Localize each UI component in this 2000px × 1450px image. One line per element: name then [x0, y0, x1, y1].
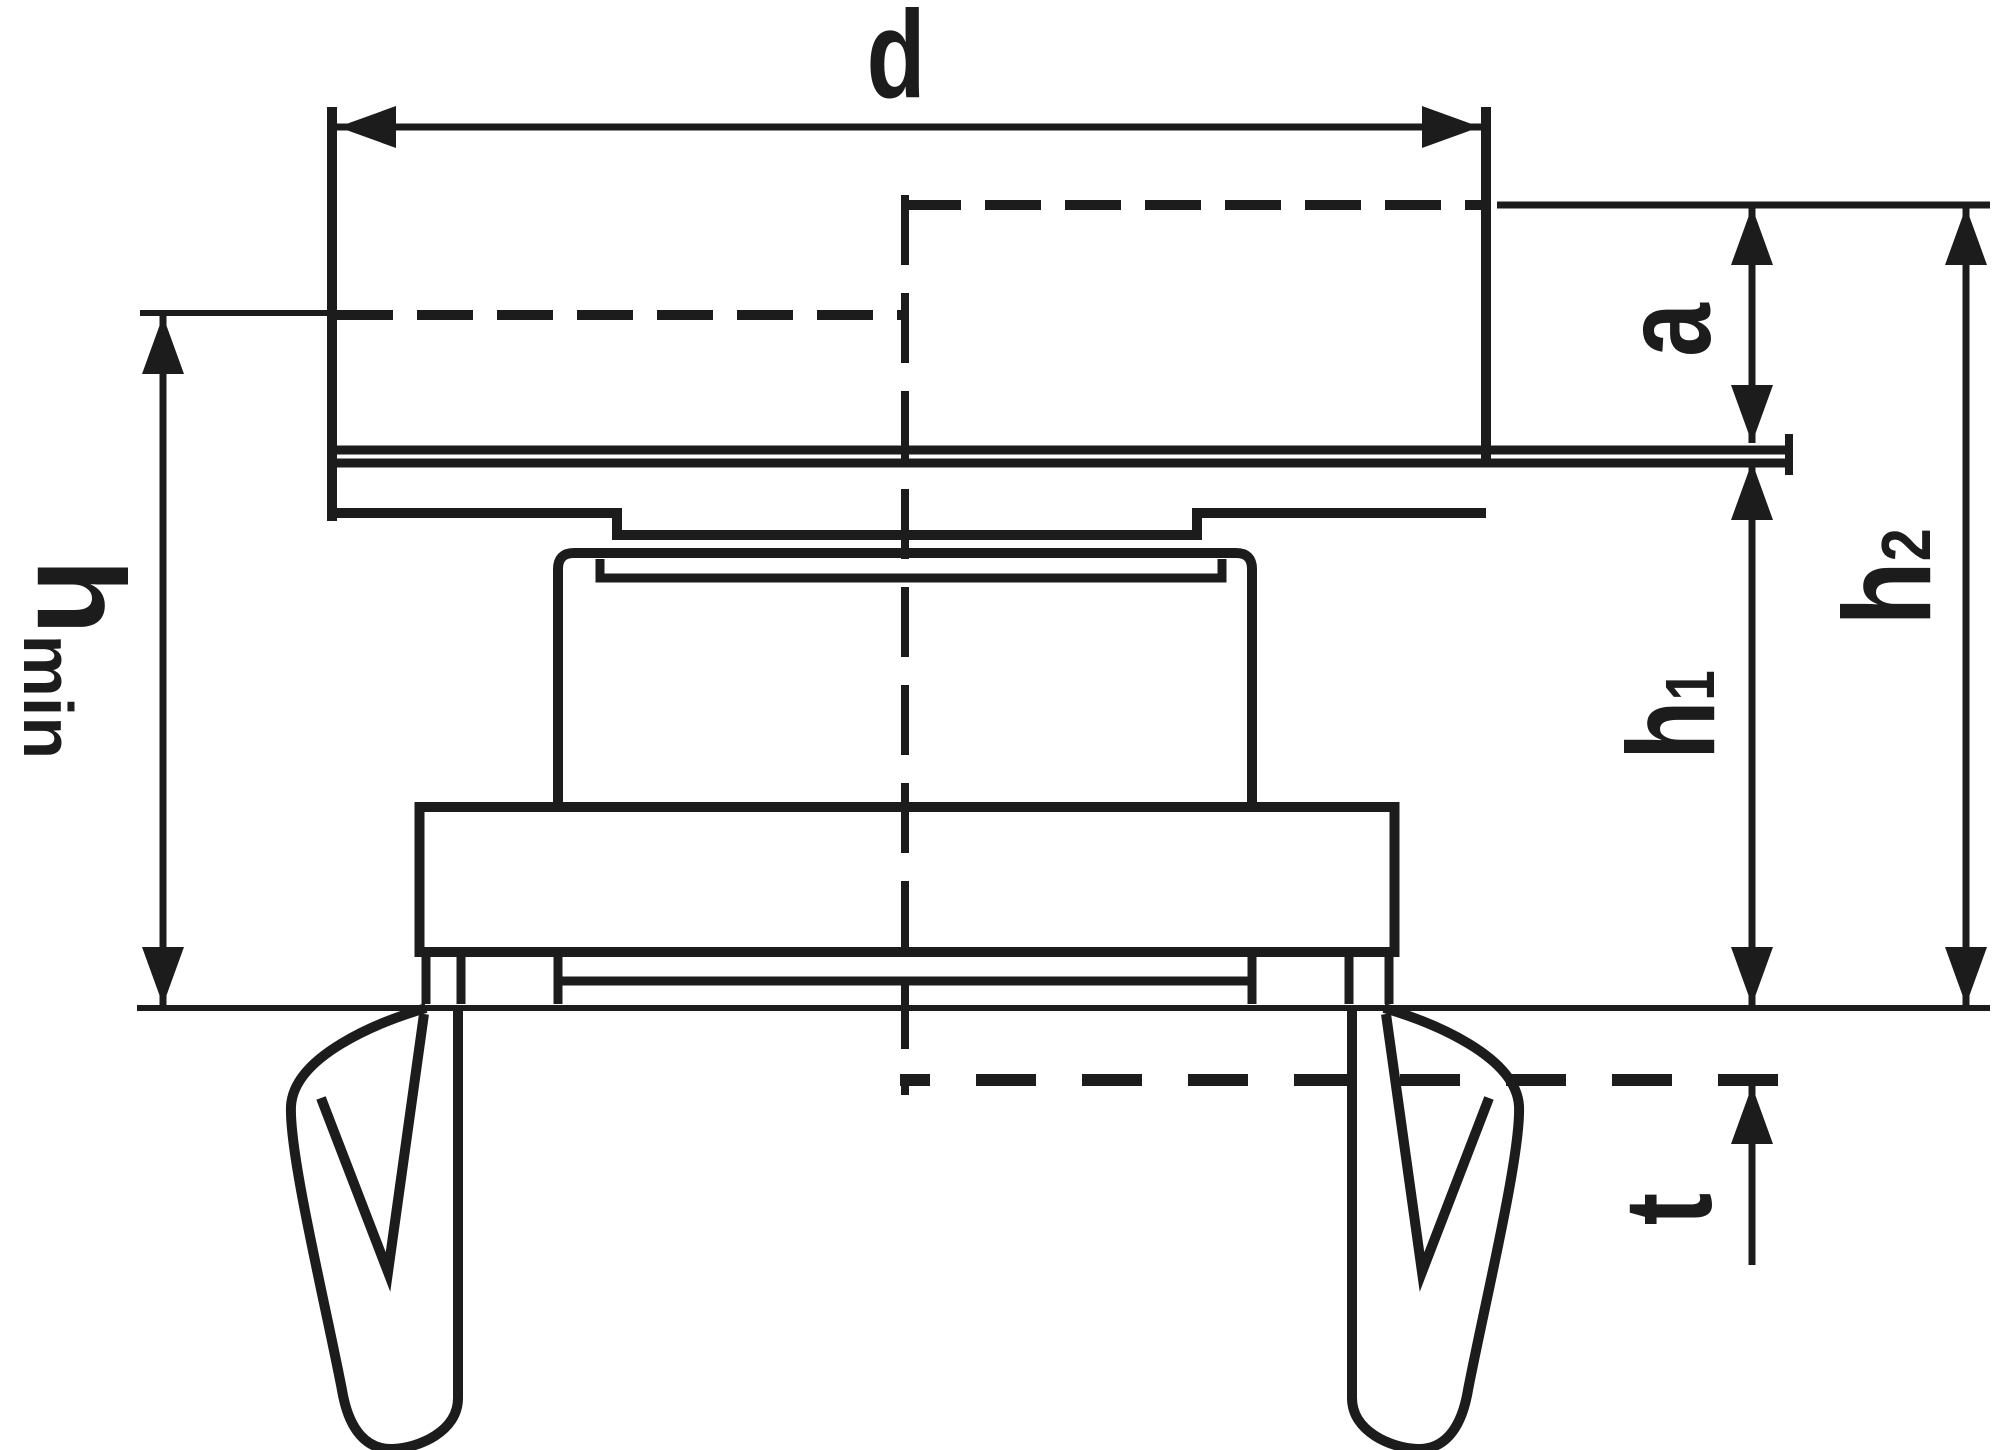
svg-text:a: a — [1597, 302, 1736, 357]
svg-text:d: d — [866, 0, 925, 124]
svg-text:t: t — [1598, 1193, 1737, 1225]
